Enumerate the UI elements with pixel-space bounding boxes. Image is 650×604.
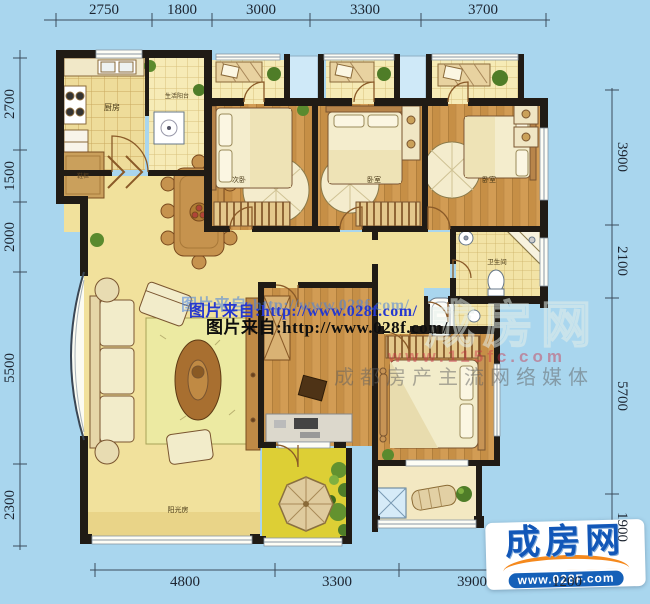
sunroom-label: 阳光房: [168, 505, 189, 514]
ottoman: [166, 429, 214, 465]
dim-bottom-4: 1200: [545, 574, 589, 590]
dim-left-5: 2300: [2, 483, 18, 527]
dim-left-2: 1500: [2, 154, 18, 198]
dim-bottom-3: 3900: [450, 574, 494, 590]
bedroom2-label: 卧室: [367, 175, 381, 184]
hallway-floor: [260, 232, 450, 288]
ghost-slogan-text: 成都房产主流网络媒体: [334, 366, 594, 389]
watermark-black: 图片来自:http://www.028f.com/: [206, 313, 448, 338]
shoe-cabinet-label: 鞋柜: [77, 172, 89, 180]
ac-ledge-2: [398, 56, 426, 102]
dim-top-2: 1800: [160, 2, 204, 18]
plant: [456, 486, 472, 502]
dresser: [402, 106, 420, 160]
ghost-logo-text: 成房网: [425, 297, 599, 353]
kitchen-label: 厨房: [104, 102, 120, 112]
ghost-url-text: www.115fc.com: [387, 347, 566, 366]
dim-right-1: 3900: [614, 135, 630, 179]
ac-ledge-1: [288, 56, 318, 102]
dim-left-3: 2000: [2, 215, 18, 259]
dim-bottom-2: 3300: [315, 574, 359, 590]
plant: [90, 233, 104, 247]
floorplan-page: 厨房 生活阳台 鞋柜 次卧 卧室 卧室 卫生间 阳光房 成房网 www.115f…: [0, 0, 650, 604]
dim-right-2: 2100: [614, 239, 630, 283]
service-balcony-label: 生活阳台: [165, 92, 189, 100]
living-balcony-floor: [84, 512, 260, 538]
dim-top-5: 3700: [461, 2, 505, 18]
dim-right-3: 5700: [614, 374, 630, 418]
bathroom-label: 卫生间: [487, 257, 507, 266]
dim-top-1: 2750: [82, 2, 126, 18]
wardrobe: [356, 202, 420, 226]
dim-bottom-1: 4800: [163, 574, 207, 590]
stove: [64, 86, 86, 124]
bedroom1-label: 次卧: [232, 175, 246, 184]
dim-right-4: 1900: [614, 505, 630, 549]
dim-left-1: 2700: [2, 82, 18, 126]
bedroom3-label: 卧室: [482, 175, 496, 184]
sofa-back: [90, 296, 100, 448]
sofa: [100, 300, 134, 346]
dim-top-4: 3300: [343, 2, 387, 18]
dim-left-4: 5500: [2, 346, 18, 390]
dim-top-3: 3000: [239, 2, 283, 18]
